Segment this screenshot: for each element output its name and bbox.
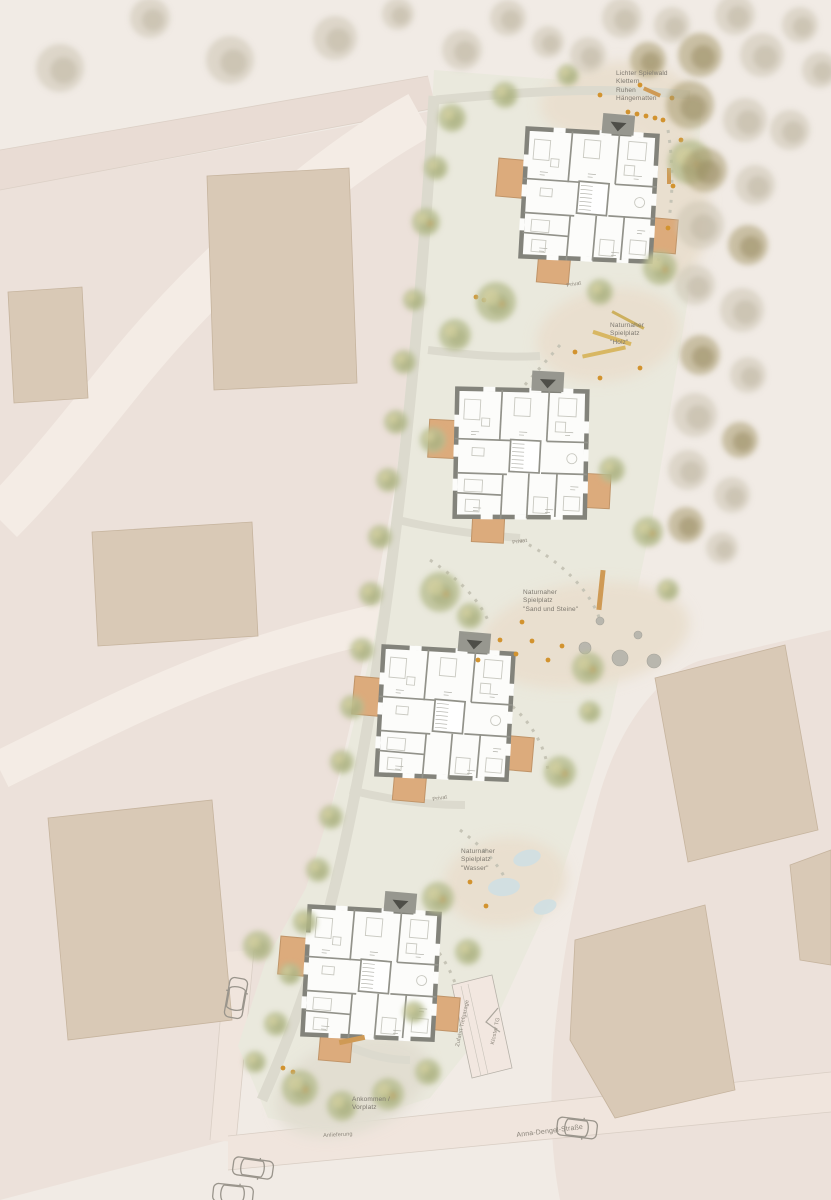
play-element-dot bbox=[666, 226, 671, 231]
site-tree bbox=[306, 858, 330, 882]
forest-tree bbox=[668, 507, 704, 543]
site-tree bbox=[264, 1012, 288, 1036]
site-tree bbox=[420, 427, 446, 453]
forest-tree bbox=[730, 357, 766, 393]
site-tree bbox=[599, 457, 625, 483]
play-element-dot bbox=[661, 118, 666, 123]
forest-tree bbox=[654, 7, 690, 43]
site-tree bbox=[492, 82, 518, 108]
site-tree bbox=[422, 882, 454, 914]
forest-tree bbox=[490, 0, 526, 36]
play-element-dot bbox=[671, 184, 676, 189]
site-tree bbox=[372, 1078, 404, 1110]
forest-tree bbox=[680, 335, 720, 375]
site-tree bbox=[403, 1001, 425, 1023]
play-element-dot bbox=[598, 93, 603, 98]
play-element-dot bbox=[644, 114, 649, 119]
site-tree bbox=[544, 756, 576, 788]
site-tree bbox=[587, 279, 613, 305]
site-tree bbox=[424, 156, 448, 180]
site-tree bbox=[392, 350, 416, 374]
forest-tree bbox=[706, 532, 738, 564]
site-tree bbox=[643, 251, 677, 285]
play-element-dot bbox=[484, 904, 489, 909]
play-element-dot bbox=[638, 366, 643, 371]
site-tree bbox=[384, 410, 408, 434]
site-tree bbox=[327, 1091, 357, 1121]
boulder bbox=[612, 650, 628, 666]
play-element-dot bbox=[653, 116, 658, 121]
forest-tree bbox=[673, 393, 717, 437]
play-element-dot bbox=[573, 350, 578, 355]
boulder bbox=[647, 654, 661, 668]
site-tree bbox=[415, 1059, 441, 1085]
forest-tree bbox=[683, 148, 727, 192]
forest-tree bbox=[675, 265, 715, 305]
play-element-dot bbox=[514, 652, 519, 657]
site-tree bbox=[633, 517, 663, 547]
forest-tree bbox=[442, 30, 482, 70]
site-tree bbox=[293, 910, 317, 934]
forest-tree bbox=[728, 225, 768, 265]
forest-tree bbox=[714, 477, 750, 513]
forest-tree bbox=[36, 44, 84, 92]
forest-tree bbox=[668, 450, 708, 490]
site-plan-drawing bbox=[0, 0, 831, 1200]
play-element-dot bbox=[530, 639, 535, 644]
play-element-dot bbox=[626, 110, 631, 115]
site-tree bbox=[368, 525, 392, 549]
existing-building-midwest bbox=[92, 522, 258, 646]
site-tree bbox=[282, 1070, 318, 1106]
forest-tree bbox=[782, 7, 818, 43]
site-tree bbox=[439, 319, 471, 351]
forest-tree bbox=[313, 16, 357, 60]
site-plan-canvas: Lichter SpielwaldKletternRuhenHängematte… bbox=[0, 0, 831, 1200]
forest-tree bbox=[570, 37, 606, 73]
site-tree bbox=[244, 1051, 266, 1073]
site-tree bbox=[350, 638, 374, 662]
forest-tree bbox=[720, 288, 764, 332]
site-tree bbox=[412, 208, 440, 236]
existing-building-west-small bbox=[8, 287, 88, 403]
forest-tree bbox=[723, 98, 767, 142]
site-tree bbox=[420, 572, 460, 612]
forest-tree bbox=[676, 201, 724, 249]
site-tree bbox=[457, 603, 483, 629]
play-element-dot bbox=[546, 658, 551, 663]
site-tree bbox=[330, 750, 354, 774]
play-element-dot bbox=[638, 83, 643, 88]
play-element-dot bbox=[520, 620, 525, 625]
site-tree bbox=[455, 939, 481, 965]
forest-tree bbox=[666, 81, 714, 129]
site-tree bbox=[340, 695, 364, 719]
site-tree bbox=[376, 468, 400, 492]
site-tree bbox=[403, 289, 425, 311]
site-tree bbox=[438, 104, 466, 132]
site-tree bbox=[243, 931, 273, 961]
forest-tree bbox=[722, 422, 758, 458]
existing-building-southwest bbox=[48, 800, 232, 1040]
forest-tree bbox=[206, 36, 254, 84]
play-element-dot bbox=[281, 1066, 286, 1071]
forest-tree bbox=[630, 42, 666, 78]
forest-tree bbox=[770, 110, 810, 150]
play-element-dot bbox=[560, 644, 565, 649]
site-tree bbox=[319, 805, 343, 829]
play-element-dot bbox=[635, 112, 640, 117]
play-element-dot bbox=[476, 658, 481, 663]
forest-tree bbox=[740, 33, 784, 77]
site-tree bbox=[657, 579, 679, 601]
site-tree bbox=[476, 282, 516, 322]
forest-tree bbox=[532, 26, 564, 58]
boulder bbox=[596, 617, 604, 625]
boulder bbox=[634, 631, 642, 639]
forest-tree bbox=[735, 165, 775, 205]
site-tree bbox=[579, 701, 601, 723]
site-tree bbox=[572, 652, 604, 684]
site-tree bbox=[359, 582, 383, 606]
forest-tree bbox=[678, 33, 722, 77]
play-element-dot bbox=[598, 376, 603, 381]
site-tree bbox=[279, 963, 301, 985]
play-element-dot bbox=[468, 880, 473, 885]
existing-building-northwest bbox=[207, 168, 357, 390]
play-element-dot bbox=[498, 638, 503, 643]
